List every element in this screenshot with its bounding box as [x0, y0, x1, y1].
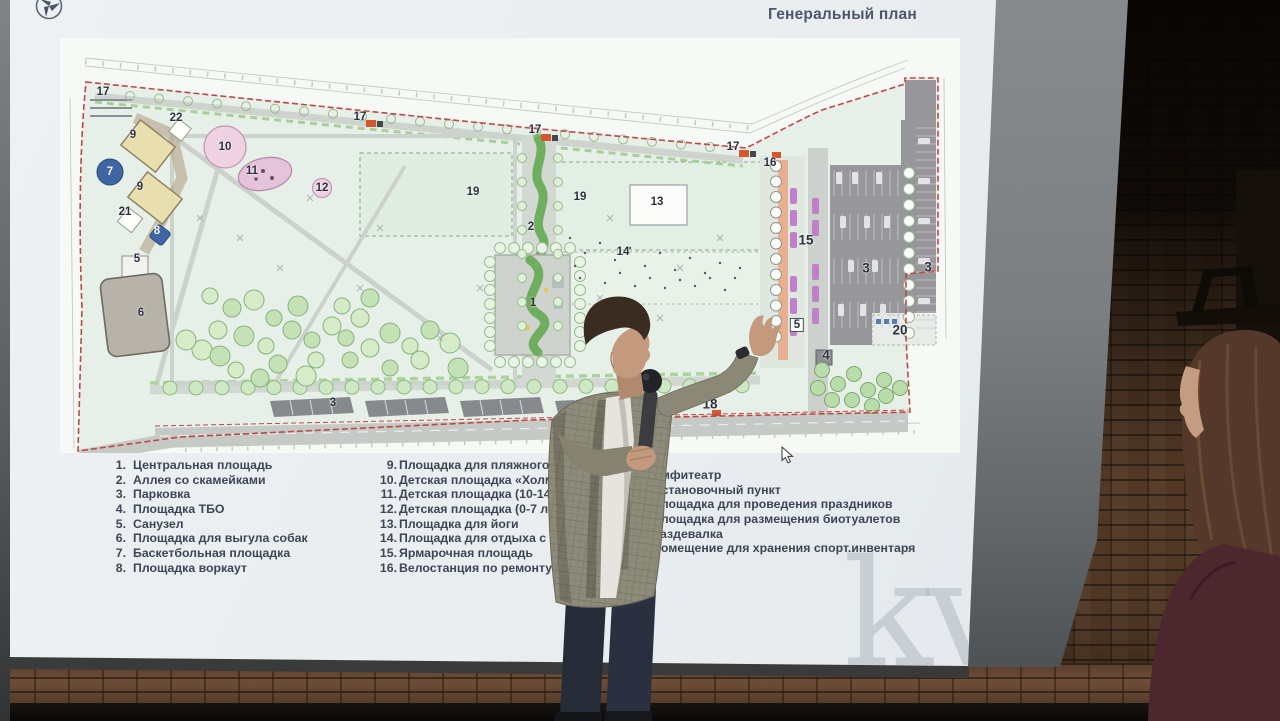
- presentation-room-photo: { "slide": { "title": "Генеральный план"…: [0, 0, 1280, 721]
- presenter: [549, 297, 781, 721]
- pointing-hand: [749, 315, 781, 356]
- audience-member: [1148, 330, 1280, 721]
